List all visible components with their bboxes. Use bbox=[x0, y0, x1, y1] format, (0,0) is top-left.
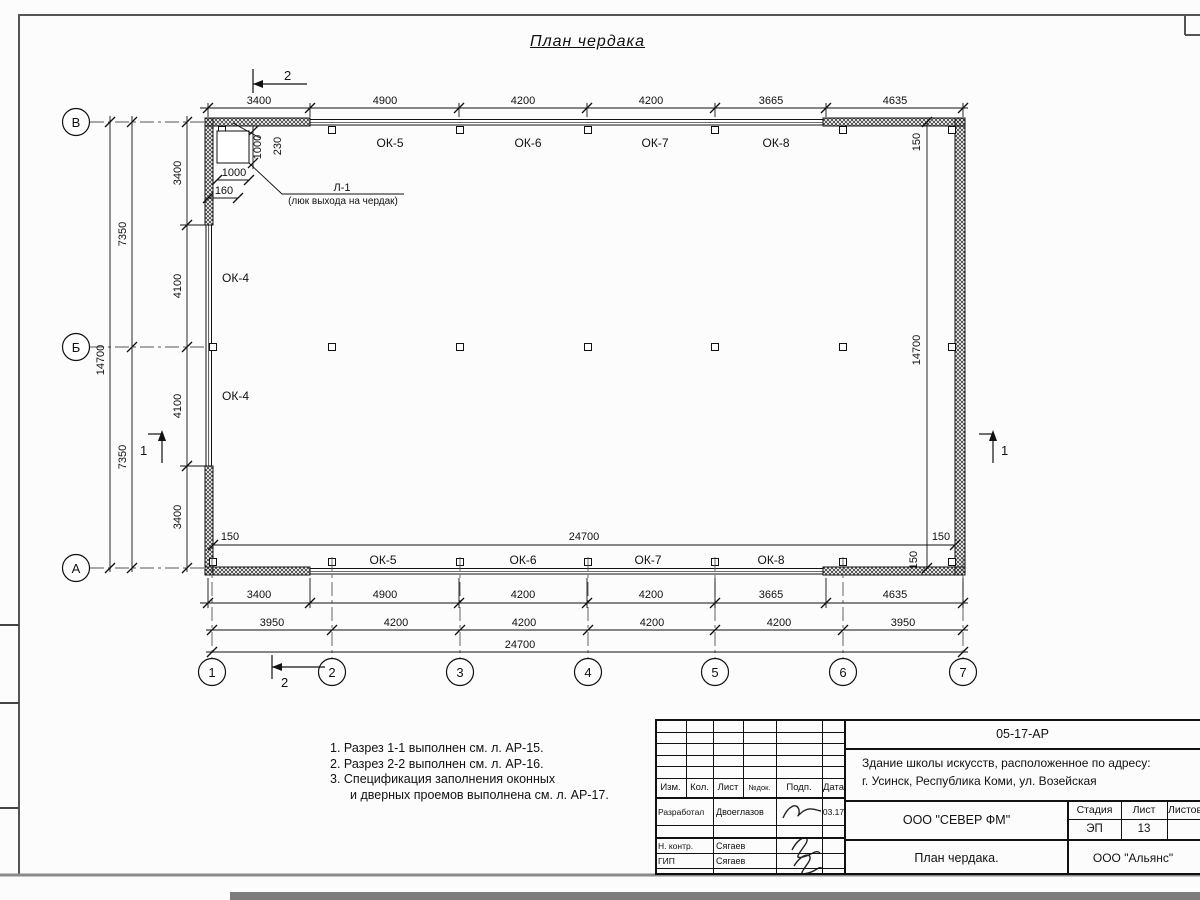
svg-text:4200: 4200 bbox=[384, 617, 408, 629]
svg-text:3400: 3400 bbox=[247, 589, 271, 601]
svg-text:4200: 4200 bbox=[512, 617, 536, 629]
svg-text:ОК-7: ОК-7 bbox=[635, 553, 662, 567]
svg-text:ОК-5: ОК-5 bbox=[370, 553, 397, 567]
sheet-number: 13 bbox=[1121, 819, 1167, 839]
section-marks bbox=[148, 69, 997, 679]
svg-text:5: 5 bbox=[711, 665, 718, 680]
role-gip: ГИП bbox=[658, 853, 713, 868]
svg-text:ОК-7: ОК-7 bbox=[642, 136, 669, 150]
svg-text:7350: 7350 bbox=[117, 222, 129, 246]
svg-text:6: 6 bbox=[839, 665, 846, 680]
svg-text:3950: 3950 bbox=[891, 617, 915, 629]
notes-block: 1. Разрез 1-1 выполнен см. л. АР-15. 2. … bbox=[330, 741, 609, 803]
svg-text:3950: 3950 bbox=[260, 617, 284, 629]
svg-text:150: 150 bbox=[911, 133, 923, 151]
svg-text:4200: 4200 bbox=[639, 95, 663, 107]
note-line: 2. Разрез 2-2 выполнен см. л. АР-16. bbox=[330, 757, 609, 773]
drawing-sheet: План чердака bbox=[0, 0, 1200, 900]
sheets-label: Листов bbox=[1167, 801, 1200, 819]
note-line: 1. Разрез 1-1 выполнен см. л. АР-15. bbox=[330, 741, 609, 757]
svg-text:1: 1 bbox=[208, 665, 215, 680]
svg-text:ОК-6: ОК-6 bbox=[510, 553, 537, 567]
svg-text:1000: 1000 bbox=[252, 135, 264, 159]
col-ndok: №док. bbox=[743, 778, 776, 797]
svg-text:4100: 4100 bbox=[172, 274, 184, 298]
column-markers bbox=[210, 127, 956, 566]
svg-text:4: 4 bbox=[584, 665, 591, 680]
role-developer: Разработал bbox=[658, 798, 713, 825]
svg-text:А: А bbox=[72, 561, 81, 576]
name-developer: Двоеглазов bbox=[716, 798, 776, 825]
col-data: Дата bbox=[822, 778, 845, 797]
svg-text:3665: 3665 bbox=[759, 589, 783, 601]
svg-text:4900: 4900 bbox=[373, 95, 397, 107]
svg-text:160: 160 bbox=[215, 185, 233, 197]
roof-hatch-detail: 1000 230 1000 160 Л-1 (люк выхода на чер… bbox=[208, 123, 404, 207]
svg-text:24700: 24700 bbox=[505, 639, 536, 651]
svg-text:230: 230 bbox=[272, 137, 284, 155]
svg-text:4200: 4200 bbox=[511, 589, 535, 601]
svg-text:3400: 3400 bbox=[172, 161, 184, 185]
svg-text:ОК-8: ОК-8 bbox=[758, 553, 785, 567]
doc-code: 05-17-АР bbox=[845, 719, 1200, 749]
svg-text:3400: 3400 bbox=[172, 505, 184, 529]
contractor-org: ООО "Альянс" bbox=[1068, 840, 1198, 875]
svg-text:4635: 4635 bbox=[883, 589, 907, 601]
svg-text:1: 1 bbox=[140, 443, 147, 458]
svg-text:2: 2 bbox=[281, 675, 288, 690]
svg-text:ОК-6: ОК-6 bbox=[515, 136, 542, 150]
svg-text:150: 150 bbox=[221, 531, 239, 543]
stage-label: Стадия bbox=[1068, 801, 1121, 819]
svg-text:24700: 24700 bbox=[569, 531, 600, 543]
col-podp: Подп. bbox=[776, 778, 822, 797]
svg-text:4200: 4200 bbox=[767, 617, 791, 629]
svg-text:3: 3 bbox=[456, 665, 463, 680]
svg-text:4635: 4635 bbox=[883, 95, 907, 107]
object-line: Здание школы искусств, расположенное по … bbox=[862, 754, 1197, 772]
design-org: ООО "СЕВЕР ФМ" bbox=[845, 801, 1068, 839]
svg-text:1: 1 bbox=[1001, 443, 1008, 458]
svg-text:4200: 4200 bbox=[639, 589, 663, 601]
svg-text:ОК-5: ОК-5 bbox=[377, 136, 404, 150]
svg-text:2: 2 bbox=[284, 68, 291, 83]
svg-text:3400: 3400 bbox=[247, 95, 271, 107]
sheet-name: План чердака. bbox=[845, 840, 1068, 875]
col-kol: Кол. bbox=[686, 778, 713, 797]
name-ncontrol: Сягаев bbox=[716, 838, 776, 853]
axis-lines bbox=[90, 122, 963, 659]
svg-text:150: 150 bbox=[908, 551, 920, 569]
role-ncontrol: Н. контр. bbox=[658, 838, 713, 853]
svg-text:3665: 3665 bbox=[759, 95, 783, 107]
svg-text:ОК-8: ОК-8 bbox=[763, 136, 790, 150]
svg-text:В: В bbox=[72, 115, 81, 130]
svg-text:ОК-4: ОК-4 bbox=[222, 271, 249, 285]
svg-text:4100: 4100 bbox=[172, 394, 184, 418]
svg-text:4200: 4200 bbox=[511, 95, 535, 107]
svg-text:4200: 4200 bbox=[640, 617, 664, 629]
svg-text:7350: 7350 bbox=[117, 445, 129, 469]
date-developer: 03.17 bbox=[822, 798, 845, 825]
svg-text:14700: 14700 bbox=[911, 335, 923, 366]
name-gip: Сягаев bbox=[716, 853, 776, 868]
object-description: Здание школы искусств, расположенное по … bbox=[862, 754, 1197, 790]
svg-text:ОК-4: ОК-4 bbox=[222, 389, 249, 403]
col-izm: Изм. bbox=[655, 778, 686, 797]
svg-text:Л-1: Л-1 bbox=[334, 182, 351, 194]
svg-text:4900: 4900 bbox=[373, 589, 397, 601]
svg-text:Б: Б bbox=[72, 340, 81, 355]
svg-text:1000: 1000 bbox=[222, 167, 246, 179]
svg-text:7: 7 bbox=[959, 665, 966, 680]
object-line: г. Усинск, Республика Коми, ул. Возейска… bbox=[862, 772, 1197, 790]
col-list: Лист bbox=[713, 778, 743, 797]
svg-text:14700: 14700 bbox=[95, 345, 107, 376]
stage-value: ЭП bbox=[1068, 819, 1121, 839]
note-line: 3. Спецификация заполнения оконных bbox=[330, 772, 609, 788]
svg-text:(люк выхода на чердак): (люк выхода на чердак) bbox=[288, 196, 398, 207]
svg-text:150: 150 bbox=[932, 531, 950, 543]
note-line: и дверных проемов выполнена см. л. АР-17… bbox=[330, 788, 609, 804]
svg-text:2: 2 bbox=[328, 665, 335, 680]
sheet-label: Лист bbox=[1121, 801, 1167, 819]
